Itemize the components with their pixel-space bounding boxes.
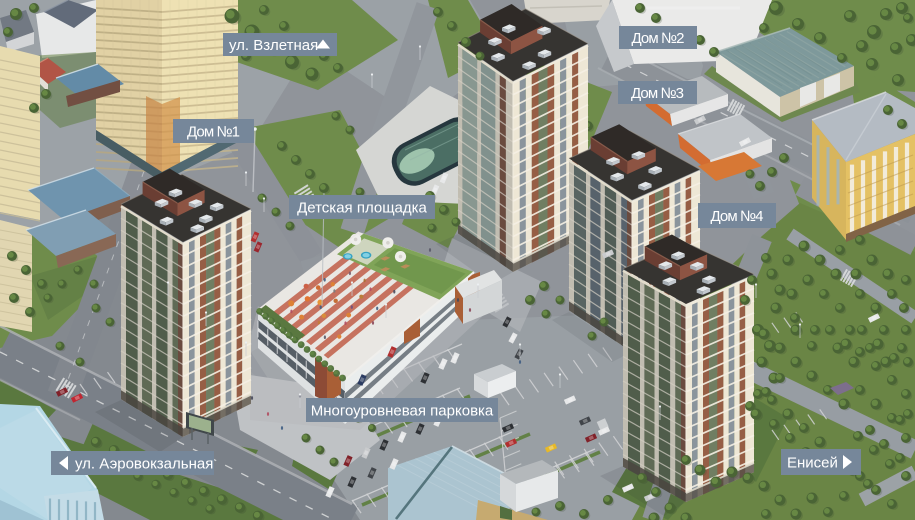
svg-text:Дом №4: Дом №4	[711, 208, 764, 225]
svg-text:Многоуровневая парковка: Многоуровневая парковка	[311, 402, 494, 419]
svg-text:Дом №1: Дом №1	[187, 123, 240, 140]
svg-text:ул. Аэровокзальная: ул. Аэровокзальная	[75, 455, 213, 472]
svg-text:ул. Взлетная: ул. Взлетная	[229, 37, 318, 54]
svg-text:Детская площадка: Детская площадка	[297, 199, 427, 216]
svg-text:Дом №2: Дом №2	[632, 30, 685, 47]
svg-text:Енисей: Енисей	[787, 454, 838, 471]
svg-text:Дом №3: Дом №3	[631, 85, 684, 102]
